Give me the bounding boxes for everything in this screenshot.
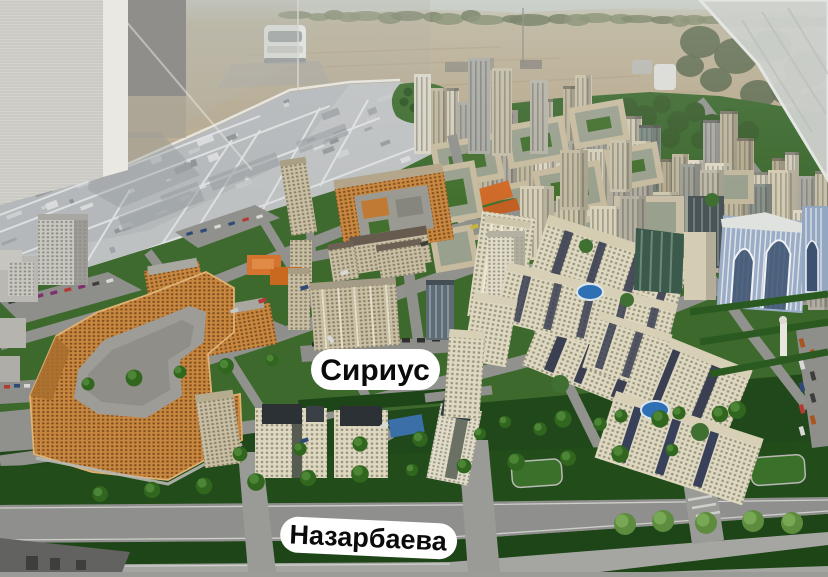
svg-text:Сириус: Сириус xyxy=(320,354,430,387)
